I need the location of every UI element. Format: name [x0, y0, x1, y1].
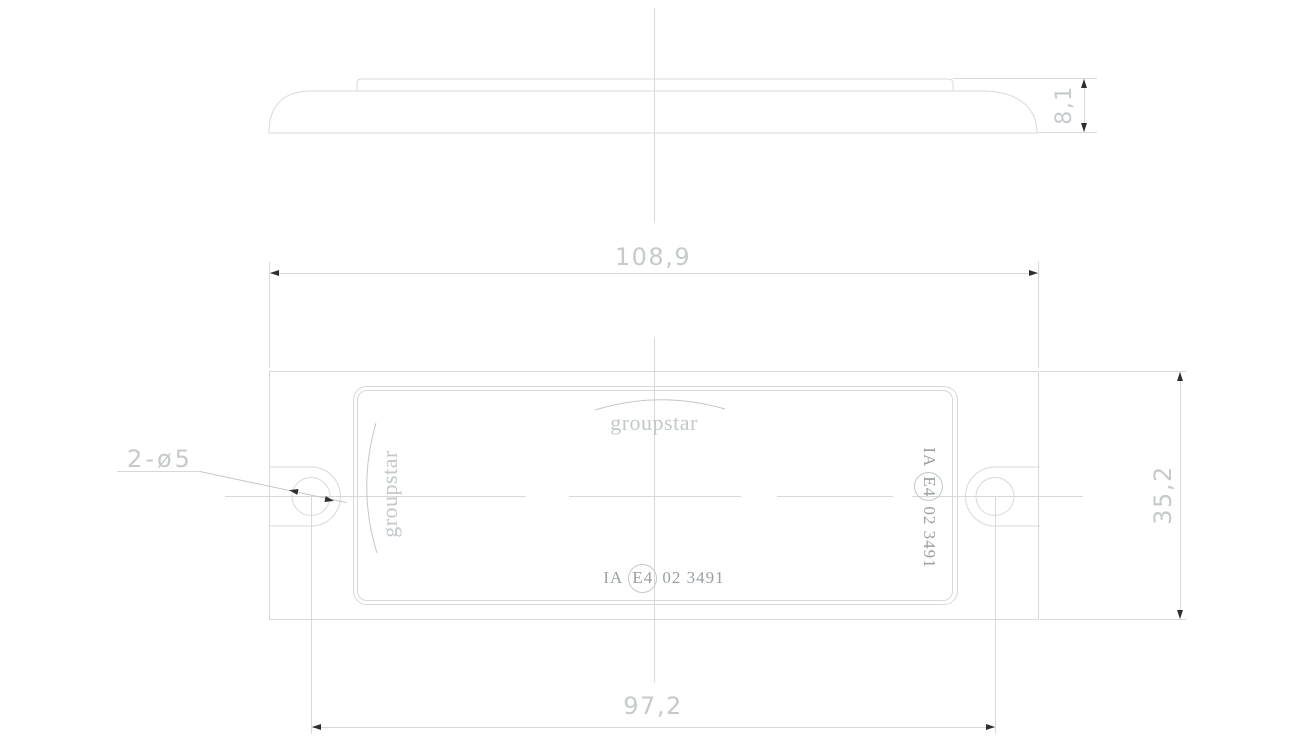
- drawing-canvas: 8,1 groupstar: [0, 0, 1316, 743]
- emark-e4-circle: E4: [628, 564, 657, 593]
- width-ext-left: [269, 262, 270, 368]
- width-dim-line: [270, 273, 1038, 274]
- logo-text: groupstar: [379, 450, 401, 538]
- emark-e4-circle: E4: [915, 472, 944, 501]
- left-ear: [265, 460, 355, 540]
- emark-prefix: IA: [603, 568, 623, 588]
- emark-bottom: IA E4 02 3491: [584, 564, 744, 592]
- emark-right-rotated: IA E4 02 3491: [915, 428, 943, 588]
- height-dim-line: [1180, 372, 1181, 619]
- width-arrow-right: [1029, 270, 1038, 276]
- thickness-arrow-up: [1081, 79, 1087, 88]
- emark-prefix: IA: [919, 447, 939, 467]
- horizontal-centerline-seg3: [777, 496, 893, 497]
- profile-body-path: [269, 91, 1037, 133]
- height-ext-bottom: [1040, 619, 1186, 620]
- horizontal-centerline-seg2: [569, 496, 741, 497]
- thickness-arrow-down: [1081, 123, 1087, 132]
- emark-suffix: 02 3491: [662, 568, 724, 588]
- right-hole-centerline: [995, 496, 996, 734]
- logo-text: groupstar: [610, 412, 698, 434]
- right-ear: [950, 460, 1045, 540]
- spacing-arrow-right: [986, 724, 995, 730]
- logo-center: groupstar: [584, 396, 724, 444]
- thickness-dim-text: 8,1: [1052, 45, 1078, 165]
- spacing-dim-text: 97,2: [593, 693, 713, 719]
- height-dim-text: 35,2: [1150, 435, 1176, 555]
- profile-outline: [260, 66, 1060, 138]
- width-dim-text: 108,9: [593, 244, 713, 270]
- holes-leader-underline: [117, 471, 201, 472]
- holes-callout-text: 2-ø5: [100, 446, 220, 472]
- height-arrow-down: [1177, 610, 1183, 619]
- spacing-arrow-left: [312, 724, 321, 730]
- emark-suffix: 02 3491: [919, 506, 939, 568]
- spacing-dim-line: [312, 727, 995, 728]
- width-arrow-left: [270, 270, 279, 276]
- left-hole-centerline: [311, 496, 312, 734]
- front-vertical-centerline: [654, 338, 655, 682]
- height-arrow-up: [1177, 372, 1183, 381]
- profile-lip-path: [357, 79, 953, 91]
- height-ext-top: [1040, 371, 1186, 372]
- width-ext-right: [1038, 262, 1039, 368]
- logo-left-rotated: groupstar: [363, 424, 411, 564]
